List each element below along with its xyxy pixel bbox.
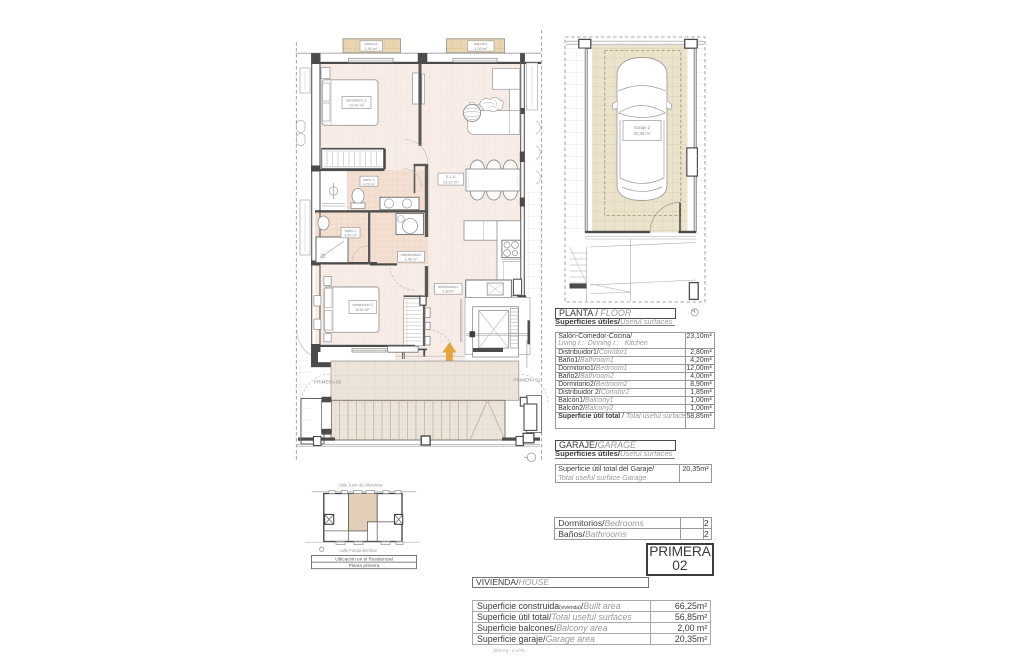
svg-text:distribuidor1: distribuidor1 — [438, 285, 459, 289]
svg-text:Planta primera: Planta primera — [349, 563, 380, 568]
svg-text:1,00 m²: 1,00 m² — [474, 47, 488, 51]
svg-text:Ubicación en el Residencial: Ubicación en el Residencial — [335, 557, 393, 562]
svg-text:20,35 m²: 20,35 m² — [634, 131, 651, 136]
svg-text:PRIMERA 01: PRIMERA 01 — [514, 378, 542, 383]
svg-text:baño 1: baño 1 — [363, 178, 375, 182]
svg-text:23,10 m²: 23,10 m² — [443, 179, 459, 184]
svg-text:balcón2: balcón2 — [474, 42, 487, 46]
svg-text:4,20 m²: 4,20 m² — [344, 234, 358, 238]
svg-text:balcón1: balcón1 — [365, 42, 378, 46]
svg-text:distribuidor2: distribuidor2 — [401, 253, 422, 257]
svg-text:baño 2: baño 2 — [345, 229, 357, 233]
svg-text:PRIMERA 03: PRIMERA 03 — [314, 380, 342, 385]
svg-text:4,20 m²: 4,20 m² — [363, 182, 377, 186]
svg-text:calle Fonda Benlson: calle Fonda Benlson — [340, 548, 379, 553]
svg-text:2,80m²: 2,80m² — [442, 290, 455, 294]
svg-text:Garaje 2: Garaje 2 — [634, 125, 651, 130]
svg-text:1,90 m²: 1,90 m² — [365, 47, 379, 51]
svg-text:12,00 m²: 12,00 m² — [349, 103, 365, 108]
svg-text:calle Juan de Allendesa: calle Juan de Allendesa — [338, 482, 383, 487]
svg-text:8,90 m²: 8,90 m² — [356, 307, 370, 312]
svg-text:1,45 m²: 1,45 m² — [405, 258, 419, 262]
